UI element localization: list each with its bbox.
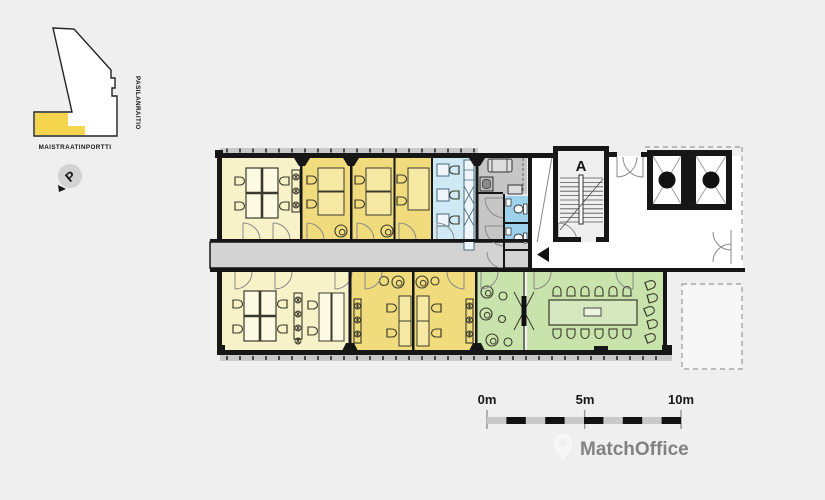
watermark-text: MatchOffice xyxy=(580,439,689,460)
desk xyxy=(399,321,411,346)
scale-label-0: 0m xyxy=(478,392,497,407)
stair-rail xyxy=(579,175,583,224)
sink xyxy=(506,228,511,235)
floor-plan-page: MAISTRAATINPORTTI PASILANRAITIO P xyxy=(0,0,825,500)
elevator-block: ↑↓ ↑↓ xyxy=(647,150,732,210)
sink xyxy=(506,199,511,206)
elevator-updown-icon: ↑↓ xyxy=(703,172,720,189)
kitchen-table xyxy=(437,164,449,176)
street-label-right: PASILANRAITIO xyxy=(134,76,141,130)
terrace xyxy=(682,284,742,369)
desk xyxy=(408,168,429,210)
printer xyxy=(508,185,522,194)
desk xyxy=(318,192,344,215)
table-console xyxy=(584,308,601,316)
scale-segment xyxy=(623,417,642,424)
scale-segment xyxy=(584,417,603,424)
street-label-bottom: MAISTRAATINPORTTI xyxy=(39,144,112,151)
floor-plan: A ↑↓ ↑↓ xyxy=(210,146,745,369)
desk xyxy=(332,293,344,341)
toilet xyxy=(514,205,523,213)
kitchen-counter xyxy=(464,160,474,250)
desk xyxy=(366,192,391,215)
desk xyxy=(318,168,344,191)
desk xyxy=(417,296,429,321)
scale-segment xyxy=(662,417,681,424)
elevator-updown-icon: ↑↓ xyxy=(659,172,676,189)
desk xyxy=(399,296,411,321)
scale-label-10: 10m xyxy=(668,392,694,407)
corridor xyxy=(210,242,530,268)
window-sill-top xyxy=(220,148,478,153)
stairwell-label: A xyxy=(576,158,587,175)
scale-label-5: 5m xyxy=(576,392,595,407)
scale-segment xyxy=(545,417,564,424)
scale-segment xyxy=(506,417,525,424)
floor-plan-canvas: MAISTRAATINPORTTI PASILANRAITIO P xyxy=(0,0,825,500)
lounge-area xyxy=(477,272,523,350)
desk xyxy=(366,168,391,191)
svg-text:↑↓: ↑↓ xyxy=(663,176,671,187)
kitchen-table xyxy=(437,189,449,201)
desk xyxy=(417,321,429,346)
svg-text:↑↓: ↑↓ xyxy=(707,176,715,187)
desk xyxy=(319,293,331,341)
